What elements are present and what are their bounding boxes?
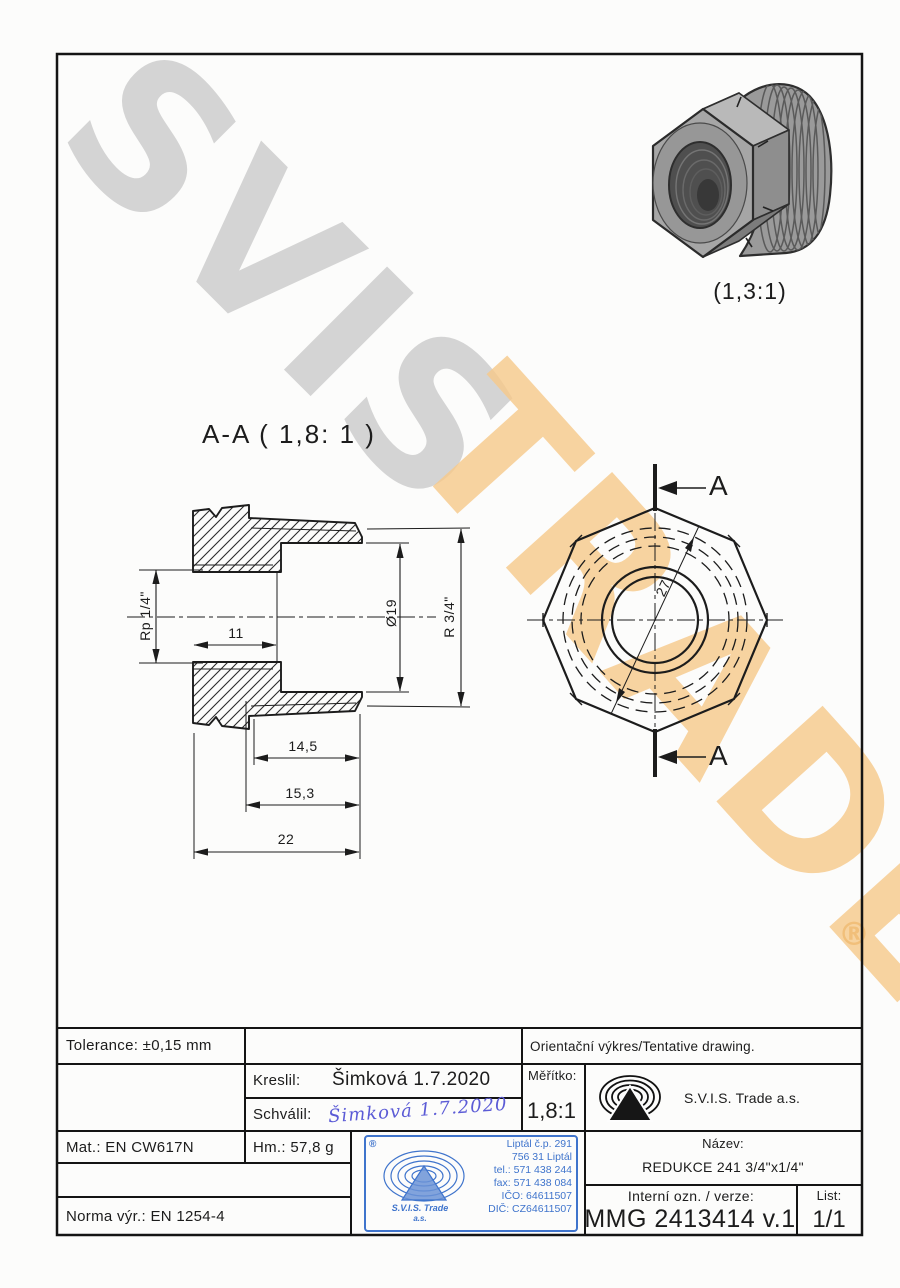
kreslil-label: Kreslil: [253,1072,300,1089]
dim-r34: R 3/4" [441,596,457,637]
stamp-line: IČO: 64611507 [502,1190,572,1203]
kreslil-value: Šimková 1.7.2020 [332,1069,491,1091]
orientacni-note: Orientační výkres/Tentative drawing. [530,1039,755,1054]
nazev-label: Název: [702,1136,744,1151]
isometric-view [653,84,839,257]
company-logo-icon [600,1076,660,1121]
dim-11: 11 [228,625,244,641]
drawing-sheet: SVIS TRADE ® [0,0,900,1288]
end-view [527,464,783,777]
section-arrow-label-top: A [709,470,728,502]
dim-rp14: Rp 1/4" [137,591,153,641]
iso-scale-label: (1,3:1) [713,278,786,305]
list-label: List: [817,1188,842,1203]
norma-field: Norma výr.: EN 1254-4 [66,1208,225,1225]
meritko-value: 1,8:1 [527,1098,576,1124]
meritko-label: Měřítko: [528,1068,577,1083]
stamp-line: DIČ: CZ64611507 [488,1203,572,1216]
tolerance-field: Tolerance: ±0,15 mm [66,1037,212,1054]
section-arrow-label-bottom: A [709,740,728,772]
stamp-registered-icon: ® [369,1139,376,1150]
interni-label: Interní ozn. / verze: [628,1188,754,1204]
stamp-line: tel.: 571 438 244 [494,1164,572,1177]
material-field: Mat.: EN CW617N [66,1139,194,1156]
stamp-company-name: S.V.I.S. Trade [392,1203,449,1213]
company-name: S.V.I.S. Trade a.s. [684,1090,800,1106]
dim-22: 22 [278,831,295,847]
interni-value: MMG 2413414 v.1 [584,1205,795,1234]
stamp-line: Liptál č.p. 291 [507,1138,572,1151]
dim-153: 15,3 [285,785,314,801]
stamp-line: fax: 571 438 084 [494,1177,572,1190]
schvalil-label: Schválil: [253,1106,312,1123]
section-view [127,505,470,859]
stamp-line: 756 31 Liptál [512,1151,572,1164]
section-view-title: A-A ( 1,8: 1 ) [202,419,376,450]
stamp-company-suffix: a.s. [413,1214,426,1223]
dim-dia19: Ø19 [383,599,399,627]
list-value: 1/1 [812,1206,845,1234]
dim-145: 14,5 [288,738,317,754]
weight-field: Hm.: 57,8 g [253,1139,334,1156]
nazev-value: REDUKCE 241 3/4"x1/4" [642,1159,804,1175]
